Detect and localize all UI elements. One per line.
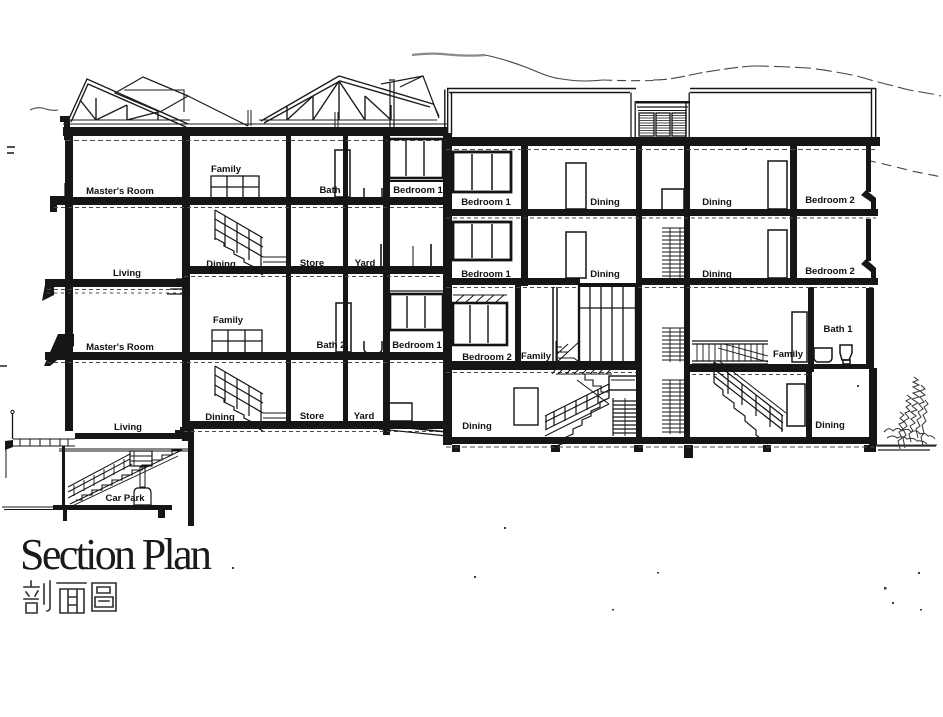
svg-text:Bedroom 1: Bedroom 1 [393, 185, 443, 196]
svg-text:Dining: Dining [590, 269, 620, 280]
svg-text:Dining: Dining [590, 197, 620, 208]
svg-text:Master's Room: Master's Room [86, 186, 154, 197]
svg-text:Living: Living [113, 268, 141, 279]
svg-text:Family: Family [773, 349, 804, 360]
svg-text:Dining: Dining [815, 420, 845, 431]
svg-text:Bedroom 1: Bedroom 1 [461, 197, 511, 208]
svg-text:Bedroom 2: Bedroom 2 [805, 195, 855, 206]
svg-text:Dining: Dining [206, 259, 236, 270]
svg-text:Yard: Yard [354, 411, 375, 422]
svg-text:Bath: Bath [319, 185, 340, 196]
svg-text:Section Plan: Section Plan [20, 530, 212, 579]
svg-text:Bedroom 2: Bedroom 2 [462, 352, 512, 363]
svg-text:Dining: Dining [702, 269, 732, 280]
svg-text:Dining: Dining [205, 412, 235, 423]
svg-text:Bedroom 1: Bedroom 1 [461, 269, 511, 280]
svg-text:Master's Room: Master's Room [86, 342, 154, 353]
svg-text:Family: Family [521, 351, 552, 362]
svg-text:Bath 2: Bath 2 [316, 340, 345, 351]
svg-text:Dining: Dining [462, 421, 492, 432]
svg-text:Store: Store [300, 411, 324, 422]
svg-text:Yard: Yard [355, 258, 376, 269]
svg-text:Bedroom 1: Bedroom 1 [392, 340, 442, 351]
svg-text:Car Park: Car Park [105, 493, 145, 504]
svg-text:Family: Family [211, 164, 242, 175]
svg-text:Store: Store [300, 258, 324, 269]
svg-text:Living: Living [114, 422, 142, 433]
svg-text:Bath 1: Bath 1 [823, 324, 853, 335]
svg-text:Bedroom 2: Bedroom 2 [805, 266, 855, 277]
svg-text:Family: Family [213, 315, 244, 326]
svg-text:Dining: Dining [702, 197, 732, 208]
